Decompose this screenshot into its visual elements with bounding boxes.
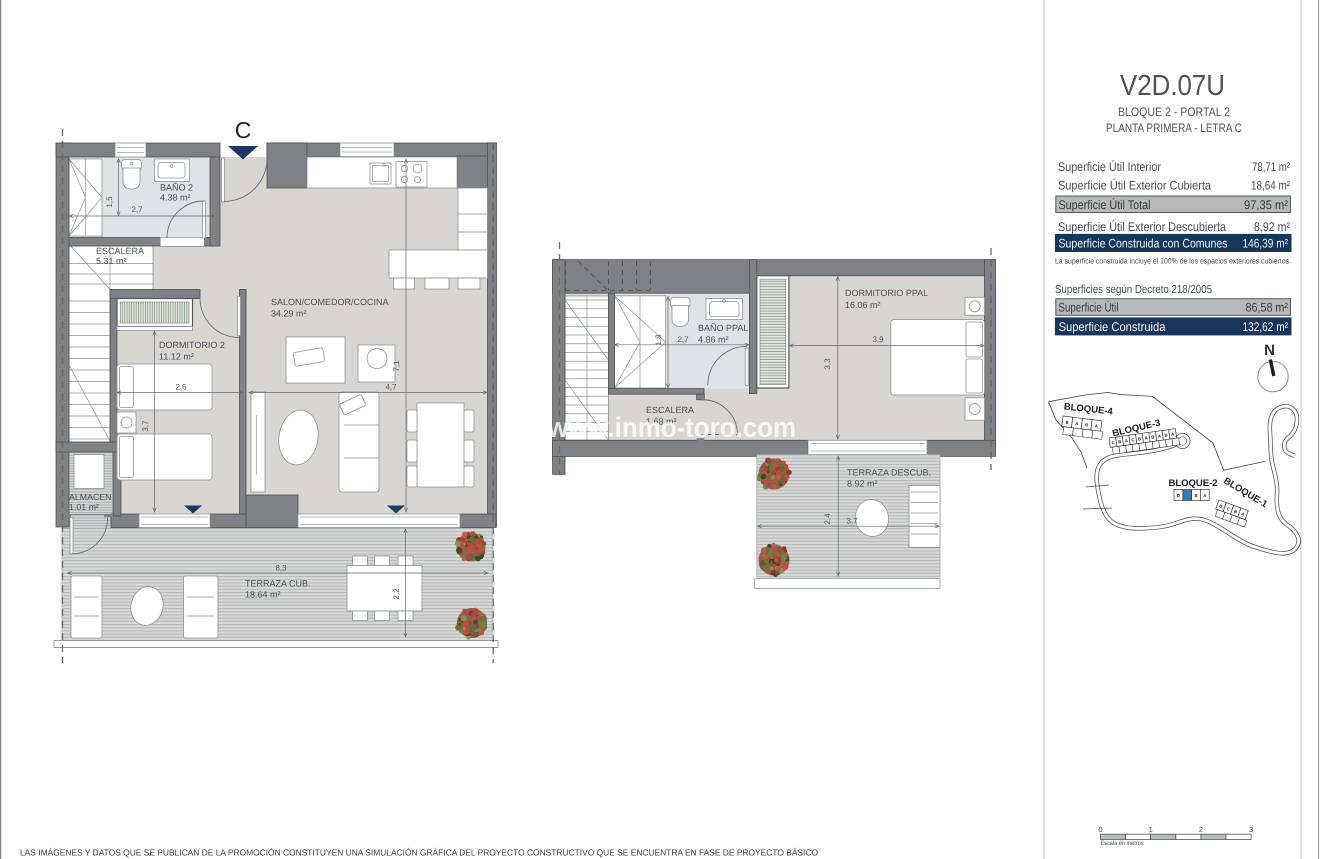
svg-text:BAÑO 2: BAÑO 2 — [160, 183, 193, 193]
svg-text:B: B — [1065, 420, 1069, 425]
svg-text:PLANTA PRIMERA - LETRA C: PLANTA PRIMERA - LETRA C — [1106, 121, 1242, 135]
svg-text:3,7: 3,7 — [141, 420, 150, 432]
svg-text:B: B — [1085, 422, 1089, 427]
svg-text:A: A — [1075, 421, 1079, 426]
svg-text:34.29 m²: 34.29 m² — [271, 309, 307, 319]
svg-text:2,6: 2,6 — [175, 383, 187, 392]
svg-text:ESCALERA: ESCALERA — [96, 246, 144, 256]
svg-text:0: 0 — [1098, 825, 1102, 834]
svg-text:3,3: 3,3 — [823, 358, 832, 370]
svg-text:1,5: 1,5 — [105, 196, 114, 208]
svg-text:ALMACEN: ALMACEN — [69, 492, 112, 502]
svg-text:16.06 m²: 16.06 m² — [845, 300, 881, 310]
svg-text:Escala en metros: Escala en metros — [1101, 840, 1144, 847]
svg-text:Superficie Útil Total: Superficie Útil Total — [1059, 198, 1151, 212]
svg-text:BLOQUE-2: BLOQUE-2 — [1168, 478, 1217, 489]
svg-text:D: D — [1177, 493, 1180, 498]
svg-text:Superficie Construida con Comu: Superficie Construida con Comunes — [1059, 236, 1228, 250]
svg-text:3,9: 3,9 — [872, 335, 884, 344]
svg-text:B: B — [1194, 493, 1197, 498]
svg-text:18.64 m²: 18.64 m² — [245, 590, 281, 600]
svg-text:4.86 m²: 4.86 m² — [698, 335, 729, 345]
svg-text:7,1: 7,1 — [392, 360, 401, 372]
svg-text:11.12 m²: 11.12 m² — [159, 352, 194, 362]
svg-text:2,4: 2,4 — [823, 513, 832, 525]
svg-text:www.inmo-toro.com: www.inmo-toro.com — [547, 412, 796, 443]
svg-text:Superficie Útil Exterior Descu: Superficie Útil Exterior Descubierta — [1058, 220, 1226, 234]
svg-text:Superficie Útil Interior: Superficie Útil Interior — [1058, 160, 1161, 174]
svg-text:146,39 m²: 146,39 m² — [1243, 236, 1289, 250]
svg-text:5.31 m²: 5.31 m² — [96, 256, 127, 266]
svg-text:97,35 m²: 97,35 m² — [1244, 198, 1288, 212]
svg-text:SALON/COMEDOR/COCINA: SALON/COMEDOR/COCINA — [271, 297, 389, 307]
svg-text:132,62 m²: 132,62 m² — [1243, 320, 1289, 334]
svg-text:18,64 m²: 18,64 m² — [1251, 178, 1290, 192]
svg-text:La superficie construida inclu: La superficie construida incluye el 100%… — [1055, 257, 1291, 266]
svg-text:8,92 m²: 8,92 m² — [1254, 220, 1290, 234]
svg-text:V2D.07U: V2D.07U — [1120, 70, 1225, 102]
svg-text:86,58 m²: 86,58 m² — [1246, 301, 1289, 315]
svg-text:2: 2 — [1199, 825, 1203, 834]
svg-text:1.01 m²: 1.01 m² — [69, 502, 99, 512]
svg-text:A: A — [1203, 493, 1206, 498]
svg-text:1: 1 — [1149, 825, 1153, 834]
svg-text:3: 3 — [1249, 825, 1253, 834]
svg-text:Superficies según Decreto 218/: Superficies según Decreto 218/2005 — [1055, 283, 1212, 296]
svg-text:A: A — [1094, 423, 1098, 428]
svg-text:Superficie Útil Exterior Cubie: Superficie Útil Exterior Cubierta — [1058, 178, 1211, 192]
svg-text:N: N — [1264, 342, 1275, 359]
svg-text:TERRAZA DESCUB.: TERRAZA DESCUB. — [847, 467, 931, 477]
svg-text:1,8: 1,8 — [654, 334, 663, 346]
svg-text:DORMITORIO 2: DORMITORIO 2 — [159, 340, 225, 350]
svg-text:2,7: 2,7 — [677, 335, 689, 344]
svg-text:8.92 m²: 8.92 m² — [847, 478, 878, 488]
svg-text:4.38 m²: 4.38 m² — [160, 193, 191, 203]
svg-text:2,2: 2,2 — [392, 588, 401, 600]
svg-text:C: C — [235, 117, 252, 143]
svg-text:BLOQUE 2 - PORTAL 2: BLOQUE 2 - PORTAL 2 — [1118, 105, 1230, 119]
svg-text:BAÑO PPAL: BAÑO PPAL — [698, 323, 748, 333]
svg-text:LAS IMÁGENES Y DATOS QUE SE PU: LAS IMÁGENES Y DATOS QUE SE PUBLICAN DE … — [20, 848, 818, 858]
svg-text:3,7: 3,7 — [846, 517, 858, 526]
svg-text:4,7: 4,7 — [385, 383, 397, 392]
svg-text:Superficie Construida: Superficie Construida — [1059, 320, 1166, 334]
svg-text:8,3: 8,3 — [275, 564, 287, 573]
svg-text:2,7: 2,7 — [131, 205, 143, 214]
svg-text:78,71 m²: 78,71 m² — [1252, 160, 1290, 174]
svg-text:DORMITORIO PPAL: DORMITORIO PPAL — [845, 288, 928, 298]
svg-text:Superficie Útil: Superficie Útil — [1059, 301, 1119, 315]
svg-text:TERRAZA CUB.: TERRAZA CUB. — [245, 579, 311, 589]
